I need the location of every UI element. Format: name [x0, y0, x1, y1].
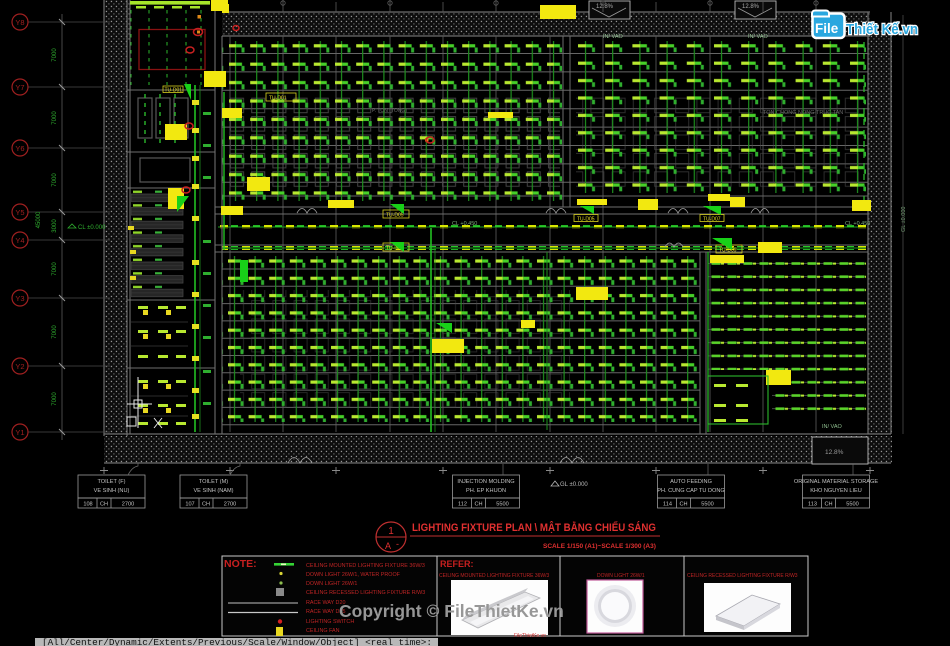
svg-text:CH: CH — [100, 502, 108, 508]
svg-text:CH: CH — [202, 502, 210, 508]
svg-text:SCALE 1/150 (A1)~SCALE 1/300 (: SCALE 1/150 (A1)~SCALE 1/300 (A3) — [543, 543, 656, 550]
svg-text:PH. EP KHUON: PH. EP KHUON — [466, 488, 506, 494]
svg-text:107: 107 — [185, 502, 194, 508]
svg-text:IN/ VAO: IN/ VAO — [603, 34, 623, 40]
svg-text:Thiết Kế.vn: Thiết Kế.vn — [846, 21, 918, 38]
svg-text:Y2: Y2 — [15, 362, 24, 371]
svg-text:Y6: Y6 — [15, 144, 24, 153]
svg-text:DOWN LIGHT 26W/1: DOWN LIGHT 26W/1 — [597, 573, 645, 579]
svg-text:TOILET (F): TOILET (F) — [97, 479, 125, 485]
svg-text:12.8%: 12.8% — [596, 4, 614, 10]
svg-text:FileThietKe.vn: FileThietKe.vn — [514, 633, 546, 639]
svg-text:Y3: Y3 — [15, 294, 24, 303]
svg-text:45000: 45000 — [36, 211, 42, 228]
svg-text:3000: 3000 — [52, 219, 58, 233]
svg-text:12.8%: 12.8% — [825, 449, 844, 456]
svg-text:7000: 7000 — [52, 48, 58, 62]
svg-text:Y5: Y5 — [15, 208, 24, 217]
svg-text:CL ±0.000: CL ±0.000 — [78, 225, 106, 231]
svg-text:CH: CH — [679, 502, 687, 508]
svg-text:A: A — [385, 541, 391, 551]
svg-text:CL +0.450: CL +0.450 — [845, 221, 870, 227]
svg-text:7000: 7000 — [52, 262, 58, 276]
svg-text:TU-D01: TU-D01 — [269, 96, 287, 102]
svg-text:112: 112 — [458, 502, 467, 508]
svg-text:TU-D05: TU-D05 — [386, 213, 404, 219]
svg-text:TU-D09: TU-D09 — [719, 248, 737, 254]
svg-text:114: 114 — [663, 502, 672, 508]
svg-text:5500: 5500 — [701, 502, 713, 508]
svg-text:IN/ VAO: IN/ VAO — [748, 34, 768, 40]
svg-text:CEILING FAN: CEILING FAN — [306, 628, 340, 634]
svg-text:7000: 7000 — [52, 325, 58, 339]
svg-text:TU-D05: TU-D05 — [577, 217, 595, 223]
svg-text:Y4: Y4 — [15, 236, 24, 245]
svg-text:5500: 5500 — [846, 502, 858, 508]
svg-text:7000: 7000 — [52, 173, 58, 187]
svg-text:P. TON (TONG): P. TON (TONG) — [372, 108, 407, 114]
svg-text:File: File — [815, 21, 839, 36]
svg-text:CH: CH — [824, 502, 832, 508]
svg-text:CEILING RECESSED LIGHTING FIXT: CEILING RECESSED LIGHTING FIXTURE R/W3 — [687, 573, 798, 579]
svg-text:CEILING RECESSED LIGHTING FIXT: CEILING RECESSED LIGHTING FIXTURE R/W3 — [306, 590, 425, 596]
svg-text:PH. CUNG CAP TU DONG: PH. CUNG CAP TU DONG — [657, 488, 725, 494]
svg-text:TOILET (M): TOILET (M) — [199, 479, 228, 485]
svg-text:5500: 5500 — [496, 502, 508, 508]
svg-text:1: 1 — [388, 526, 394, 537]
svg-text:Y8: Y8 — [15, 18, 24, 27]
svg-text:ORIGINAL MATERIAL STORAGE: ORIGINAL MATERIAL STORAGE — [794, 479, 879, 485]
svg-text:CEILING MOUNTED LIGHTING FIXTU: CEILING MOUNTED LIGHTING FIXTURE 36W/3 — [306, 563, 425, 569]
svg-text:NOTE:: NOTE: — [224, 558, 257, 570]
svg-text:GL ±0.000: GL ±0.000 — [901, 207, 907, 232]
svg-text:Y1: Y1 — [15, 428, 24, 437]
svg-text:2700: 2700 — [122, 502, 134, 508]
svg-text:GL ±0.000: GL ±0.000 — [560, 482, 588, 488]
svg-text:REFER:: REFER: — [440, 559, 474, 569]
svg-text:TU-D07: TU-D07 — [703, 217, 721, 223]
svg-text:IN/ VAO: IN/ VAO — [822, 424, 842, 430]
svg-text:7000: 7000 — [52, 111, 58, 125]
svg-text:-: - — [396, 539, 399, 549]
svg-text:108: 108 — [83, 502, 92, 508]
svg-text:[All/Center/Dynamic/Extents/Pr: [All/Center/Dynamic/Extents/Previous/Sca… — [42, 637, 432, 646]
svg-text:Y7: Y7 — [15, 83, 24, 92]
svg-text:KHO NGUYEN LIEU: KHO NGUYEN LIEU — [810, 488, 862, 494]
svg-text:DOWN LIGHT 26W/1, WATER PROOF: DOWN LIGHT 26W/1, WATER PROOF — [306, 572, 401, 578]
svg-text:TON CHONG NONG TRUC TAN: TON CHONG NONG TRUC TAN — [763, 110, 843, 116]
svg-text:TU-D01: TU-D01 — [165, 88, 183, 94]
svg-text:CEILING MOUNTED LIGHTING FIXTU: CEILING MOUNTED LIGHTING FIXTURE 36W/3 — [439, 573, 550, 579]
svg-text:CL +0.450: CL +0.450 — [452, 221, 477, 227]
svg-text:VE SINH (NU): VE SINH (NU) — [94, 488, 130, 494]
svg-text:VE SINH (NAM): VE SINH (NAM) — [193, 488, 233, 494]
svg-text:INJECTION MOLDING: INJECTION MOLDING — [457, 479, 514, 485]
svg-text:12.8%: 12.8% — [742, 4, 760, 10]
svg-text:2700: 2700 — [224, 502, 236, 508]
svg-text:DOWN LIGHT 26W/1: DOWN LIGHT 26W/1 — [306, 581, 357, 587]
svg-text:113: 113 — [808, 502, 817, 508]
svg-text:CH: CH — [474, 502, 482, 508]
svg-text:LIGHTING FIXTURE PLAN \ MẬT BẰ: LIGHTING FIXTURE PLAN \ MẬT BẰNG CHIẾU S… — [412, 521, 656, 534]
svg-text:AUTO FEEDING: AUTO FEEDING — [670, 479, 712, 485]
svg-text:7000: 7000 — [52, 392, 58, 406]
svg-text:Copyright © FileThietKe.vn: Copyright © FileThietKe.vn — [339, 601, 564, 621]
